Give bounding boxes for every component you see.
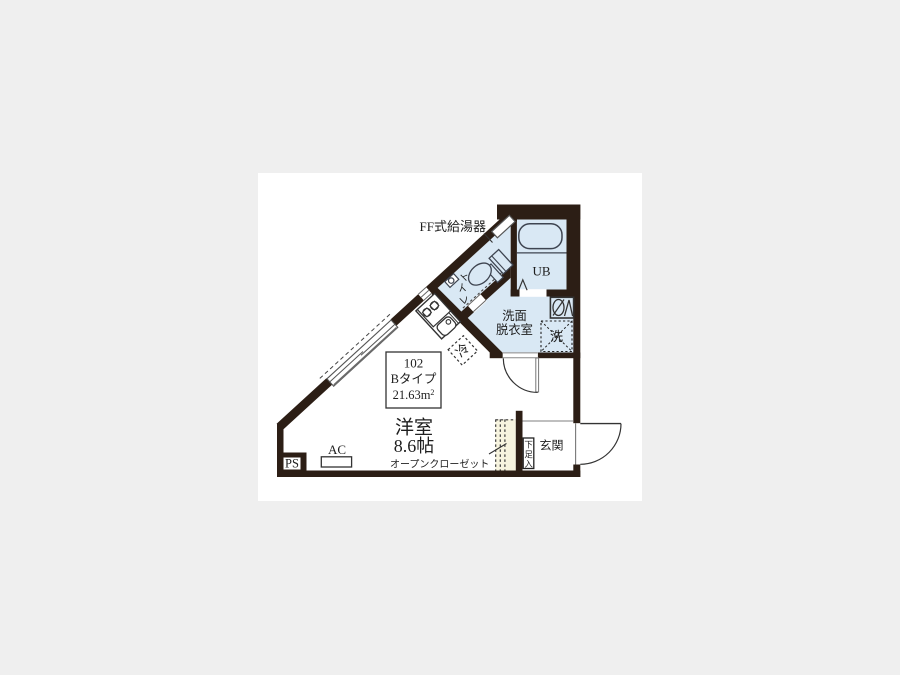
svg-text:オープンクローゼット: オープンクローゼット xyxy=(390,458,489,470)
svg-text:102: 102 xyxy=(404,356,424,371)
svg-text:洗: 洗 xyxy=(550,329,563,344)
svg-text:AC: AC xyxy=(328,442,346,457)
svg-text:PS: PS xyxy=(285,456,299,470)
svg-text:Bタイプ: Bタイプ xyxy=(391,372,437,386)
svg-text:足: 足 xyxy=(524,449,533,459)
svg-text:UB: UB xyxy=(532,264,550,279)
svg-text:入: 入 xyxy=(524,459,533,469)
svg-text:脱衣室: 脱衣室 xyxy=(496,322,533,337)
svg-text:玄関: 玄関 xyxy=(539,438,563,453)
svg-text:洗面: 洗面 xyxy=(502,309,527,323)
svg-text:21.63m2: 21.63m2 xyxy=(393,388,435,402)
svg-text:8.6帖: 8.6帖 xyxy=(394,436,435,456)
svg-text:下: 下 xyxy=(524,439,533,449)
svg-text:FF式給湯器: FF式給湯器 xyxy=(420,219,486,234)
